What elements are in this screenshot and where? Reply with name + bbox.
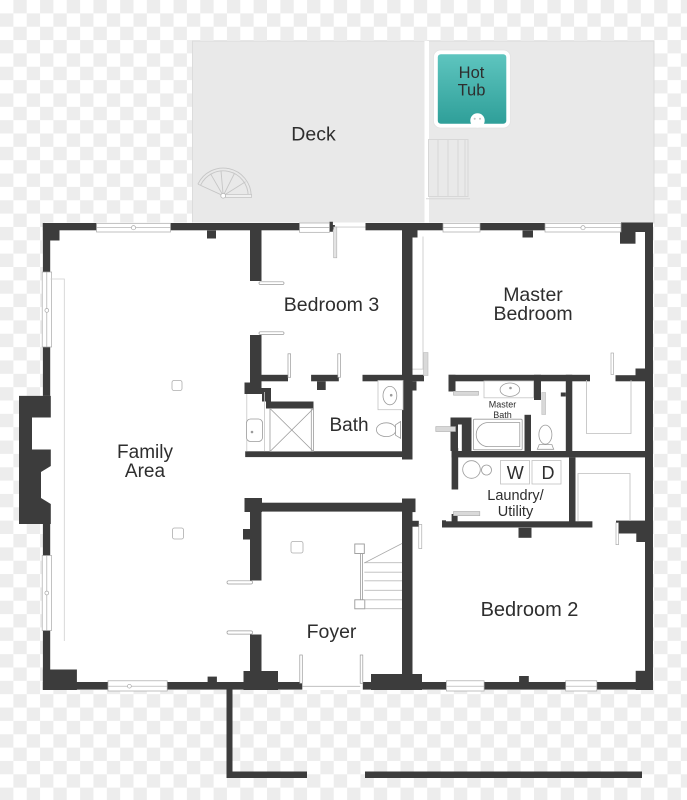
svg-text:Family: Family xyxy=(117,442,173,463)
svg-text:Bedroom: Bedroom xyxy=(493,303,572,325)
svg-text:Master: Master xyxy=(489,400,517,410)
svg-text:Bath: Bath xyxy=(493,410,512,420)
svg-text:Utility: Utility xyxy=(498,504,534,520)
svg-text:D: D xyxy=(542,463,555,483)
svg-text:Deck: Deck xyxy=(291,123,336,145)
svg-text:Tub: Tub xyxy=(458,82,486,100)
svg-text:Bath: Bath xyxy=(329,415,368,436)
svg-text:W: W xyxy=(507,463,524,483)
svg-text:Bedroom 2: Bedroom 2 xyxy=(481,599,579,621)
svg-text:Laundry/: Laundry/ xyxy=(487,488,544,504)
svg-text:Hot: Hot xyxy=(459,64,485,82)
svg-text:Foyer: Foyer xyxy=(307,621,357,643)
svg-text:Area: Area xyxy=(125,461,166,482)
svg-text:Bedroom 3: Bedroom 3 xyxy=(284,294,379,316)
